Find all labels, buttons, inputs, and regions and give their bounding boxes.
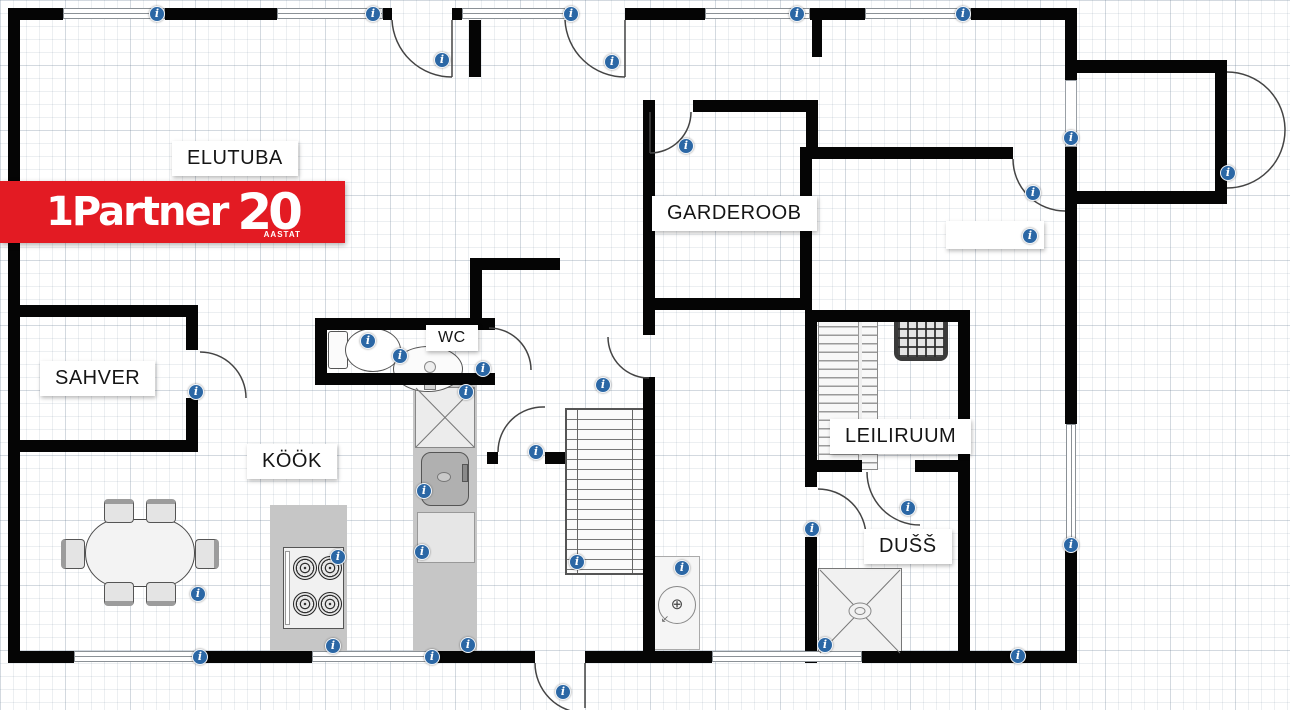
door-arc bbox=[608, 337, 649, 378]
info-icon[interactable]: i bbox=[1063, 130, 1079, 146]
shower-drain bbox=[849, 603, 871, 619]
info-icon[interactable]: i bbox=[569, 554, 585, 570]
info-icon[interactable]: i bbox=[604, 54, 620, 70]
door-arc bbox=[818, 489, 866, 537]
info-icon[interactable]: i bbox=[365, 6, 381, 22]
room-label-shower: DUŠŠ bbox=[864, 529, 952, 564]
info-icon[interactable]: i bbox=[360, 333, 376, 349]
info-icon[interactable]: i bbox=[149, 6, 165, 22]
info-icon[interactable]: i bbox=[595, 377, 611, 393]
info-icon[interactable]: i bbox=[325, 638, 341, 654]
info-icon[interactable]: i bbox=[1010, 648, 1026, 664]
info-icon[interactable]: i bbox=[460, 637, 476, 653]
logo-anniversary-text: AASTAT bbox=[264, 230, 301, 239]
partner-logo-banner: 1Partner 20 AASTAT bbox=[0, 181, 345, 243]
door-arc bbox=[867, 472, 920, 525]
info-icon[interactable]: i bbox=[392, 348, 408, 364]
door-arc bbox=[1227, 130, 1285, 188]
info-icon[interactable]: i bbox=[555, 684, 571, 700]
room-label-wardrobe: GARDEROOB bbox=[652, 196, 817, 231]
info-icon[interactable]: i bbox=[817, 637, 833, 653]
info-icon[interactable]: i bbox=[804, 521, 820, 537]
info-icon[interactable]: i bbox=[900, 500, 916, 516]
room-label-living: ELUTUBA bbox=[172, 141, 298, 176]
door-arc bbox=[392, 20, 452, 77]
logo-brand-text: 1Partner bbox=[46, 189, 227, 235]
info-icon[interactable]: i bbox=[789, 6, 805, 22]
room-label-wc: WC bbox=[426, 325, 478, 351]
info-icon[interactable]: i bbox=[563, 6, 579, 22]
door-arc bbox=[200, 352, 246, 398]
room-label-pantry: SAHVER bbox=[40, 361, 155, 396]
info-icon[interactable]: i bbox=[416, 483, 432, 499]
info-icon[interactable]: i bbox=[1025, 185, 1041, 201]
info-icon[interactable]: i bbox=[955, 6, 971, 22]
info-icon[interactable]: i bbox=[674, 560, 690, 576]
info-icon[interactable]: i bbox=[414, 544, 430, 560]
info-icon[interactable]: i bbox=[192, 649, 208, 665]
info-icon[interactable]: i bbox=[190, 586, 206, 602]
info-icon[interactable]: i bbox=[1220, 165, 1236, 181]
info-icon[interactable]: i bbox=[528, 444, 544, 460]
info-icon[interactable]: i bbox=[1063, 537, 1079, 553]
info-icon[interactable]: i bbox=[458, 384, 474, 400]
door-arcs-layer bbox=[0, 0, 1290, 710]
room-label-sauna: LEILIRUUM bbox=[830, 419, 971, 454]
info-icon[interactable]: i bbox=[330, 549, 346, 565]
room-label-kitchen: KÖÖK bbox=[247, 444, 337, 479]
info-icon[interactable]: i bbox=[434, 52, 450, 68]
info-icon[interactable]: i bbox=[1022, 228, 1038, 244]
floor-plan: ⊕ ↙ bbox=[0, 0, 1290, 710]
info-icon[interactable]: i bbox=[678, 138, 694, 154]
info-icon[interactable]: i bbox=[424, 649, 440, 665]
info-icon[interactable]: i bbox=[188, 384, 204, 400]
door-arc bbox=[1013, 159, 1065, 211]
door-arc bbox=[489, 328, 531, 370]
door-arc bbox=[1227, 72, 1285, 130]
info-icon[interactable]: i bbox=[475, 361, 491, 377]
